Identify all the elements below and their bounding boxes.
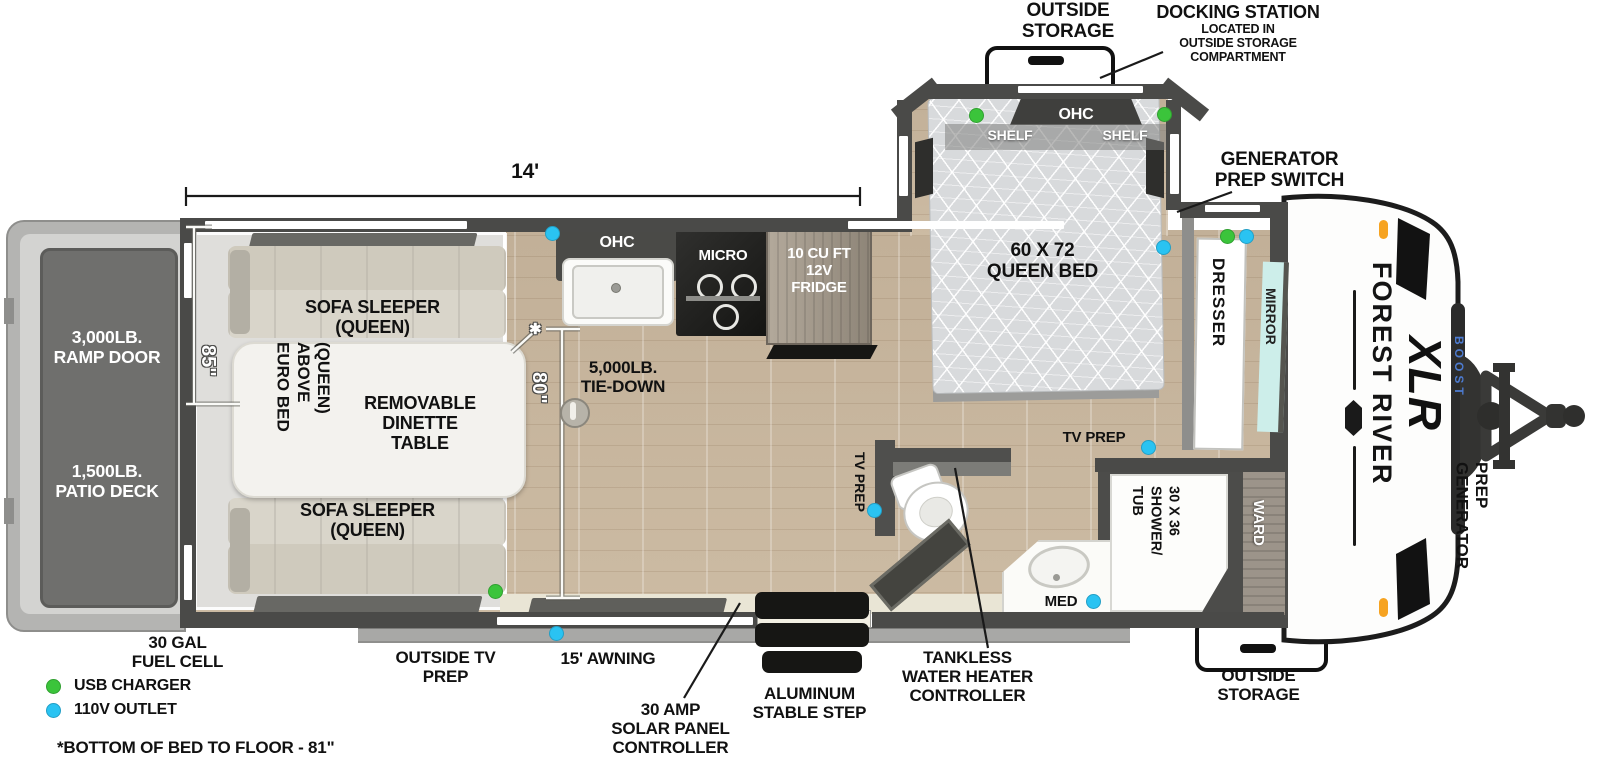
window-bottom [497,617,753,625]
footnote: *BOTTOM OF BED TO FLOOR - 81" [57,738,417,757]
kitchen-ohc-label: OHC [556,234,678,252]
marker-light-bottom [1379,598,1388,617]
entry-step-3 [762,651,862,673]
bath-shelf-top [893,448,1011,462]
ramp-hinge-bottom [4,498,14,524]
outlet-110v-dot [1141,440,1156,455]
shower-label: 30 X 36 SHOWER/ TUB [1128,486,1182,604]
jack-post [1499,368,1510,464]
burner-center-icon [713,304,739,330]
window-bedroom-top [1018,86,1143,93]
outside-tv-prep-label: OUTSIDE TVPREP [378,648,513,686]
outlet-110v-dot [545,226,560,241]
tankless-label: TANKLESSWATER HEATERCONTROLLER [880,648,1055,705]
docking-station-label: DOCKING STATION LOCATED IN OUTSIDE STORA… [1148,2,1328,64]
kitchen-faucet-icon [611,283,621,293]
window-front-top [1205,205,1260,212]
shelf-left-label: SHELF [950,128,1070,144]
window-top-kitchen [848,221,1064,229]
window-rear-top [184,243,192,298]
outside-storage-top-label: OUTSIDESTORAGE [988,0,1148,43]
bath-tv-prep-label: TV PREP [852,452,868,544]
sofa-top-label: SOFA SLEEPER(QUEEN) [285,297,460,337]
model-logo-xlr: XLR [1398,336,1452,536]
outlet-110v-dot [1239,229,1254,244]
sofa-bottom-armrest [230,508,250,592]
legend-outlet-dot [46,703,61,718]
sofa-bottom-label: SOFA SLEEPER(QUEEN) [280,500,455,540]
generator-prep-label: GENERATOR PREP [1452,462,1491,622]
shelf-right-label: SHELF [1065,128,1185,144]
outlet-110v-dot [1156,240,1171,255]
floor-mark: ✱ [529,320,542,338]
legend-usb-dot [46,679,61,694]
floorplan-canvas: 3,000LB.RAMP DOOR 1,500LB.PATIO DECK FOR… [0,0,1600,768]
ramp-door-label: 3,000LB.RAMP DOOR [42,328,172,367]
outside-storage-bottom-handle [1240,644,1276,653]
usb-charger-dot [969,108,984,123]
usb-charger-dot [488,584,503,599]
legend-outlet-label: 110V OUTLET [74,701,274,719]
sofa-bottom-backrest [228,544,506,594]
dim-14ft-line [186,187,860,206]
entry-step-2 [755,623,869,647]
window-bedroom-left [899,136,908,196]
ramp-hinge-top [4,298,14,324]
window-rear-bottom [184,545,192,600]
fridge-label: 10 CU FT12VFRIDGE [766,246,872,296]
outside-storage-top-handle [1028,56,1064,65]
bath-faucet-icon [1053,574,1060,581]
legend-usb-label: USB CHARGER [74,677,274,695]
bedroom-ohc-label: OHC [1010,106,1142,124]
usb-charger-dot [1157,107,1172,122]
outlet-110v-dot [1086,594,1101,609]
outlet-110v-dot [549,626,564,641]
stove-shelf [686,296,760,301]
dim-85in-label: 85" [196,345,219,415]
sofa-top-backrest [228,246,506,292]
window-top-garage [205,221,467,229]
fuel-cell-label: 30 GALFUEL CELL [95,633,260,671]
outside-storage-bottom-label: OUTSIDESTORAGE [1186,666,1331,704]
bath-wall-top [1095,458,1288,472]
entry-step-1 [755,592,869,619]
wall-bottom-front [872,612,1284,628]
awning-label: 15' AWNING [548,649,668,668]
wardrobe-label: WARD [1250,500,1267,590]
dim-14ft-label: 14' [495,160,555,184]
stable-step-label: ALUMINUMSTABLE STEP [742,684,877,722]
generator-prep-switch-label: GENERATORPREP SWITCH [1202,149,1357,192]
sofa-top-armrest [230,250,250,334]
usb-charger-dot [1220,229,1235,244]
brand-logo: FOREST RIVER [1366,262,1397,582]
awning-rail [358,627,1130,643]
fridge-door-swing [766,345,877,359]
bedroom-window-left-icon [915,138,933,198]
marker-light-top [1379,220,1388,239]
patio-deck-label: 1,500LB.PATIO DECK [42,462,172,501]
tie-down-anchor-slot [570,402,576,420]
jack-cap-top [1493,363,1515,372]
solar-controller-label: 30 AMPSOLAR PANELCONTROLLER [588,700,753,757]
tie-down-label: 5,000LB.TIE-DOWN [558,358,688,396]
micro-label: MICRO [676,248,770,265]
ramp-door-panel [40,248,178,608]
dresser-wall-shadow [1182,212,1194,450]
cap-feather-top [1353,290,1356,390]
dinette-label: REMOVABLEDINETTETABLE [345,393,495,453]
mirror-label: MIRROR [1263,288,1279,418]
euro-bed-label: EURO BED ABOVE (QUEEN) [272,342,333,494]
coupler-ball [1563,405,1585,427]
dresser-label: DRESSER [1208,258,1228,438]
jack-cap-bottom [1493,460,1515,469]
outlet-110v-dot [867,503,882,518]
dim-80in-label: 80" [527,372,550,442]
cap-feather-bottom [1353,446,1356,546]
bedroom-tv-prep-label: TV PREP [1048,430,1140,447]
queen-bed-label: 60 X 72QUEEN BED [960,240,1125,283]
